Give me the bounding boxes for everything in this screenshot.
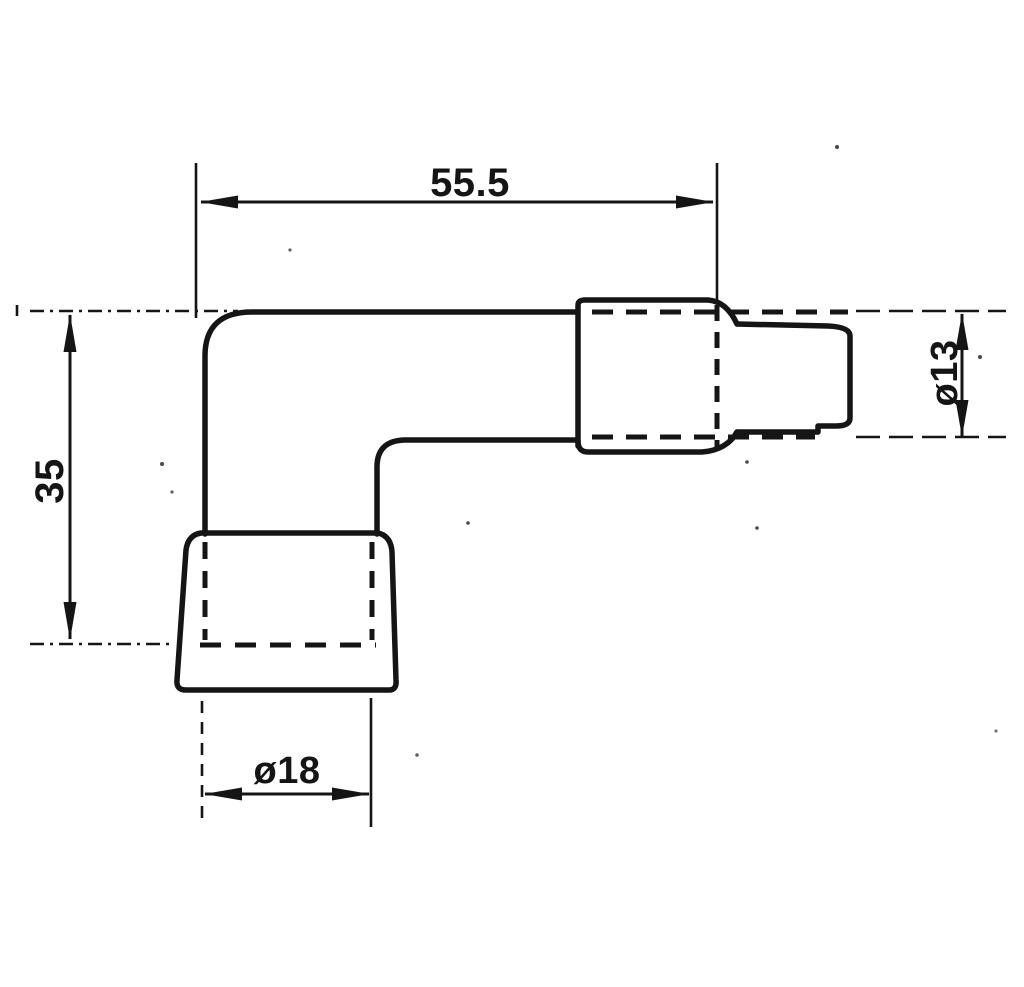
paper-background <box>0 0 1024 987</box>
scan-speck <box>745 460 749 464</box>
dimension-label-width-top: 55.5 <box>430 161 510 205</box>
scan-speck <box>978 355 982 359</box>
dimension-label-diameter-bottom: ø18 <box>254 750 321 792</box>
scan-speck <box>288 248 291 251</box>
scan-speck <box>835 145 839 149</box>
dimension-label-height-left: 35 <box>28 458 72 504</box>
scan-speck <box>994 729 997 732</box>
technical-drawing-page: 55.5 35 ø13 ø18 <box>0 0 1024 987</box>
spark-plug-cap-dimension-drawing: 55.5 35 ø13 ø18 <box>0 0 1024 987</box>
scan-speck <box>466 521 470 525</box>
scan-speck <box>170 490 173 493</box>
dimension-label-diameter-right: ø13 <box>924 340 966 407</box>
scan-speck <box>160 462 164 466</box>
scan-speck <box>415 753 419 757</box>
scan-speck <box>755 526 759 530</box>
